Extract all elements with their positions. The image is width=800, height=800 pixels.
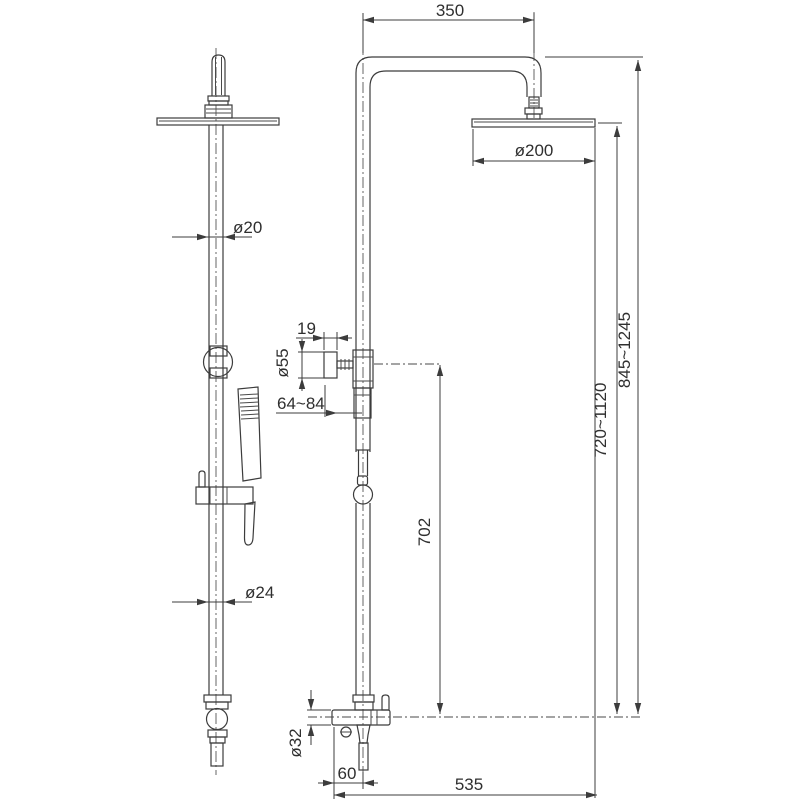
dim-label-adjustable-total-height: 845~1245 [615, 312, 634, 388]
shower-outlet-bar [332, 695, 390, 770]
dim-label-outlet-to-valve-height: 702 [415, 518, 434, 546]
dim-label-knob-diameter: ø55 [273, 348, 292, 377]
bracket-lever [199, 471, 205, 487]
dim-knob-diameter: ø55 [273, 339, 324, 391]
dim-outlet-to-valve-height: 702 [374, 364, 440, 714]
top-connector-front [205, 55, 232, 118]
dim-label-wall-distance: 64~84 [277, 394, 325, 413]
dim-label-head-diameter: ø200 [515, 141, 554, 160]
front-view: ø20 ø24 [157, 48, 279, 775]
head-connector-side [525, 97, 542, 119]
hand-shower-bracket [196, 471, 253, 504]
valve-assembly [324, 350, 373, 418]
bottom-connector-front [204, 695, 231, 766]
drawing-canvas: ø20 ø24 [0, 0, 800, 800]
outlet-fitting [357, 725, 370, 743]
dim-knob-depth: 19 [296, 319, 352, 350]
dim-outlet-offset: 60 [318, 727, 378, 799]
outlet-pipe [359, 743, 368, 770]
valve-knob [324, 352, 337, 378]
side-view: 350 ø200 845~1245 720~1120 1 [273, 1, 643, 799]
hand-shower-handle [245, 502, 256, 545]
dim-label-pipe-upper-diameter: ø20 [233, 218, 262, 237]
dim-label-top-width: 350 [436, 1, 464, 20]
dim-label-pipe-lower-diameter: ø24 [245, 583, 274, 602]
dim-pipe-upper-diameter: ø20 [172, 218, 262, 237]
rain-head-side [472, 119, 595, 127]
dim-head-diameter: ø200 [473, 128, 595, 798]
dim-total-reach: 535 [334, 775, 597, 795]
slider-ring [204, 346, 233, 378]
dim-wall-distance: 64~84 [276, 385, 362, 417]
rain-head-front [157, 118, 279, 125]
dim-label-bar-diameter: ø32 [286, 728, 305, 757]
diverter-pin [382, 695, 389, 710]
hand-shower [238, 387, 261, 545]
dim-label-total-reach: 535 [455, 775, 483, 794]
dim-label-knob-depth: 19 [297, 319, 316, 338]
shower-technical-drawing: ø20 ø24 [0, 0, 800, 800]
hand-shower-spray-face [240, 394, 259, 419]
dim-label-adjustable-inner-height: 720~1120 [591, 383, 610, 458]
gooseneck-arm [356, 57, 541, 452]
dim-top-width: 350 [363, 1, 534, 53]
dim-bar-diameter: ø32 [286, 690, 331, 758]
dim-adjustable-inner-height: 720~1120 [591, 123, 622, 714]
dim-label-outlet-offset: 60 [338, 764, 357, 783]
